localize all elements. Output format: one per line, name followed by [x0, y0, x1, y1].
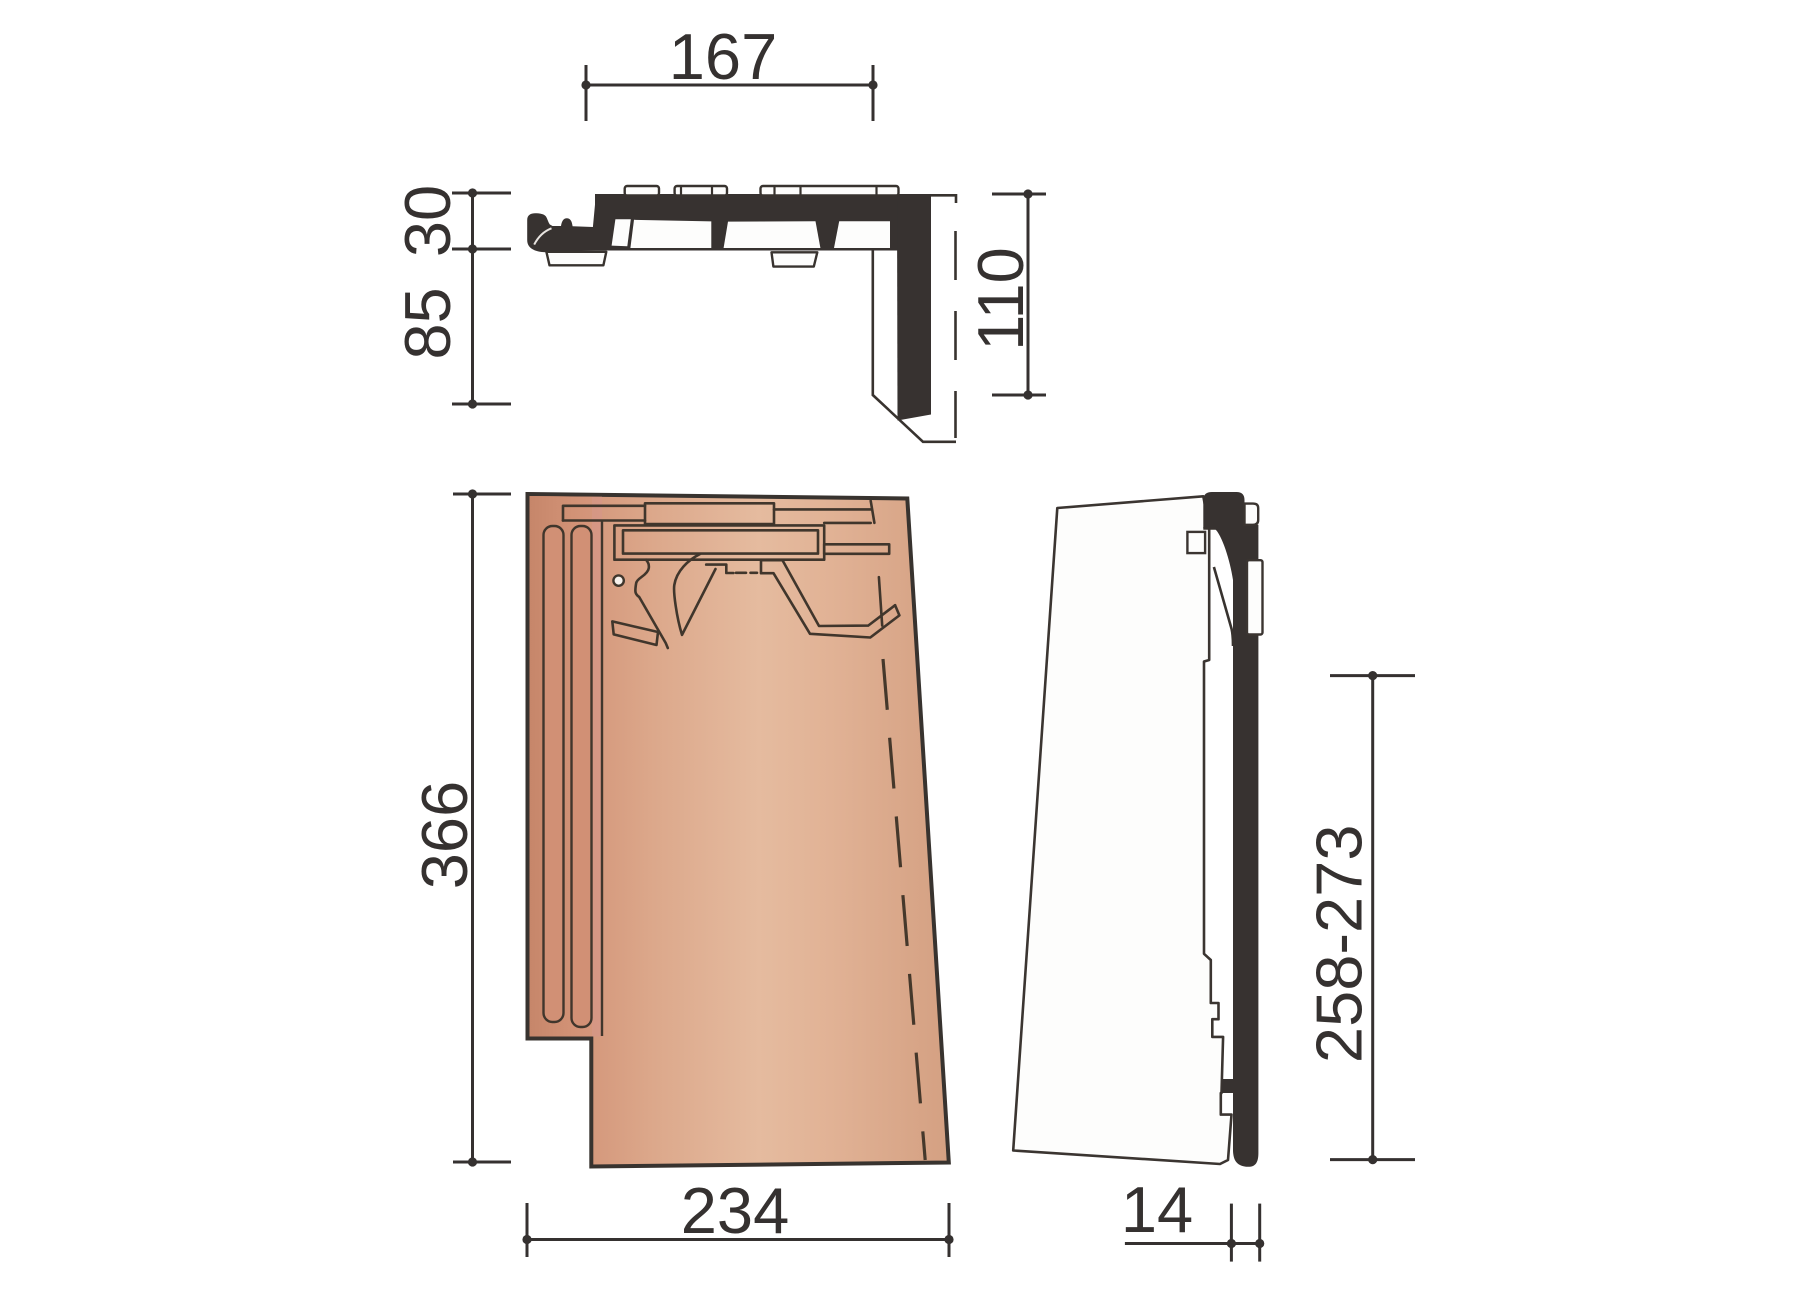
svg-text:167: 167 [669, 20, 777, 93]
svg-text:366: 366 [408, 781, 481, 889]
svg-text:85: 85 [391, 287, 464, 359]
svg-text:234: 234 [681, 1174, 789, 1247]
svg-text:258-273: 258-273 [1302, 825, 1375, 1064]
svg-text:30: 30 [391, 185, 464, 257]
svg-text:14: 14 [1121, 1173, 1193, 1246]
svg-text:110: 110 [964, 247, 1037, 351]
